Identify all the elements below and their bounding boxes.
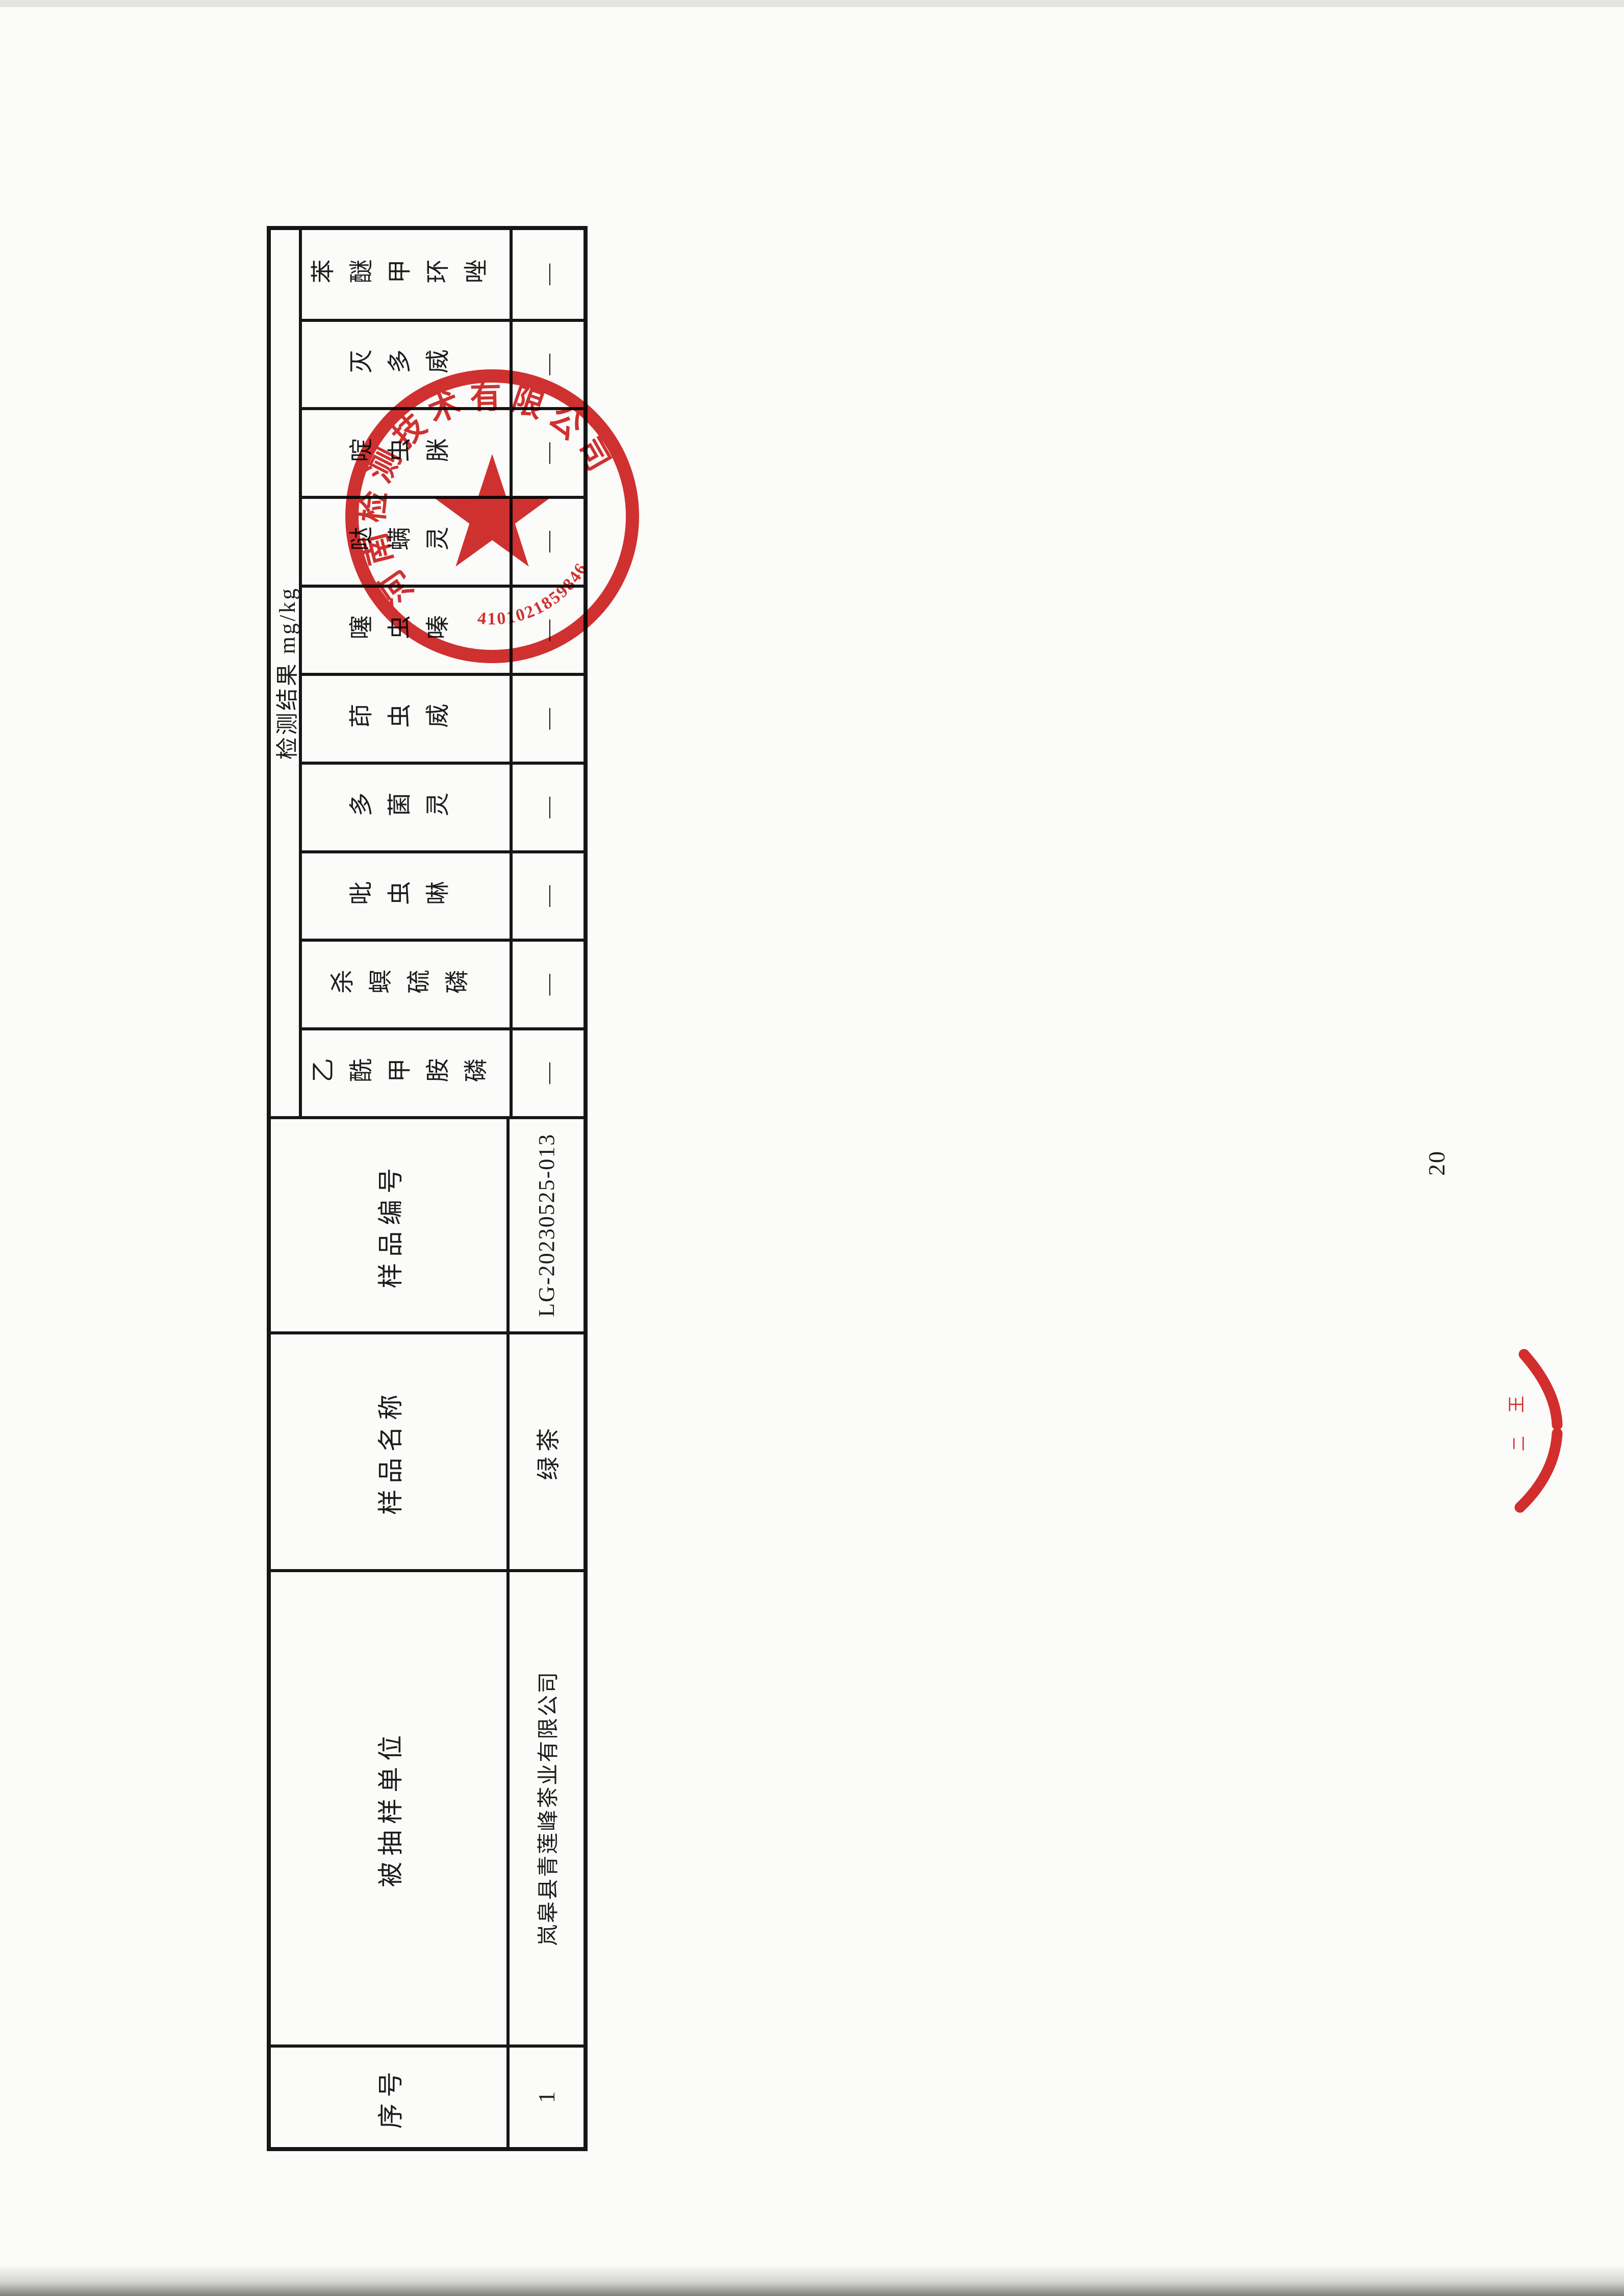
pesticide-result: — <box>513 1027 583 1116</box>
pesticide-name: 啶虫脒 <box>348 441 463 465</box>
sample-code-value: LG-20230525-013 <box>510 1119 583 1331</box>
pesticide-result: — <box>513 673 583 762</box>
pesticide-name: 哒螨灵 <box>348 529 463 553</box>
pesticide-name: 苯醚甲环唑 <box>310 262 501 286</box>
column-sample-code: 样品编号 LG-20230525-013 <box>271 1116 583 1331</box>
page-number: 20 <box>1423 1150 1450 1176</box>
sample-name-label: 样品名称 <box>271 1334 510 1569</box>
pesticide-name: 吡虫啉 <box>348 884 463 908</box>
pesticide-name: 灭多威 <box>348 352 463 376</box>
column-group-results: 检测结果 mg/kg 乙酰甲胺磷 杀螟硫磷 吡虫啉 多菌灵 茚虫威 噻虫嗪 哒螨… <box>271 230 583 1116</box>
pesticide-result: — <box>513 939 583 1027</box>
serial-value: 1 <box>510 2048 583 2147</box>
rotated-document-layer: 序号 1 被抽样单位 岚皋县青莲峰茶业有限公司 样品名称 绿茶 样品编号 LG-… <box>0 0 1624 2296</box>
column-serial: 序号 1 <box>271 2045 583 2147</box>
results-group-label: 检测结果 mg/kg <box>271 230 302 1116</box>
pesticide-result: — <box>513 496 583 585</box>
pesticide-result: — <box>513 319 583 408</box>
pesticide-result: — <box>513 407 583 496</box>
pesticide-result: — <box>513 762 583 850</box>
pesticide-header-row: 乙酰甲胺磷 杀螟硫磷 吡虫啉 多菌灵 茚虫威 噻虫嗪 哒螨灵 啶虫脒 灭多威 苯… <box>302 230 513 1116</box>
sample-name-value: 绿茶 <box>510 1334 583 1569</box>
serial-label: 序号 <box>271 2048 510 2147</box>
sample-code-label: 样品编号 <box>271 1119 510 1331</box>
column-sampled-unit: 被抽样单位 岚皋县青莲峰茶业有限公司 <box>271 1569 583 2045</box>
pesticide-result: — <box>513 230 583 319</box>
pesticide-name: 杀螟硫磷 <box>329 973 483 997</box>
pesticide-value-row: — — — — — — — — — — <box>513 230 583 1116</box>
scanned-report-page: 序号 1 被抽样单位 岚皋县青莲峰茶业有限公司 样品名称 绿茶 样品编号 LG-… <box>0 0 1624 2296</box>
column-sample-name: 样品名称 绿茶 <box>271 1331 583 1569</box>
pesticide-name: 茚虫威 <box>348 707 463 731</box>
pesticide-name: 噻虫嗪 <box>348 618 463 642</box>
pesticide-name: 多菌灵 <box>348 795 463 819</box>
sampling-results-table: 序号 1 被抽样单位 岚皋县青莲峰茶业有限公司 样品名称 绿茶 样品编号 LG-… <box>267 226 588 2151</box>
pesticide-result: — <box>513 850 583 939</box>
pesticide-result: — <box>513 585 583 673</box>
sampled-unit-value: 岚皋县青莲峰茶业有限公司 <box>510 1572 583 2045</box>
pesticide-name: 乙酰甲胺磷 <box>310 1062 501 1086</box>
sampled-unit-label: 被抽样单位 <box>271 1572 510 2045</box>
